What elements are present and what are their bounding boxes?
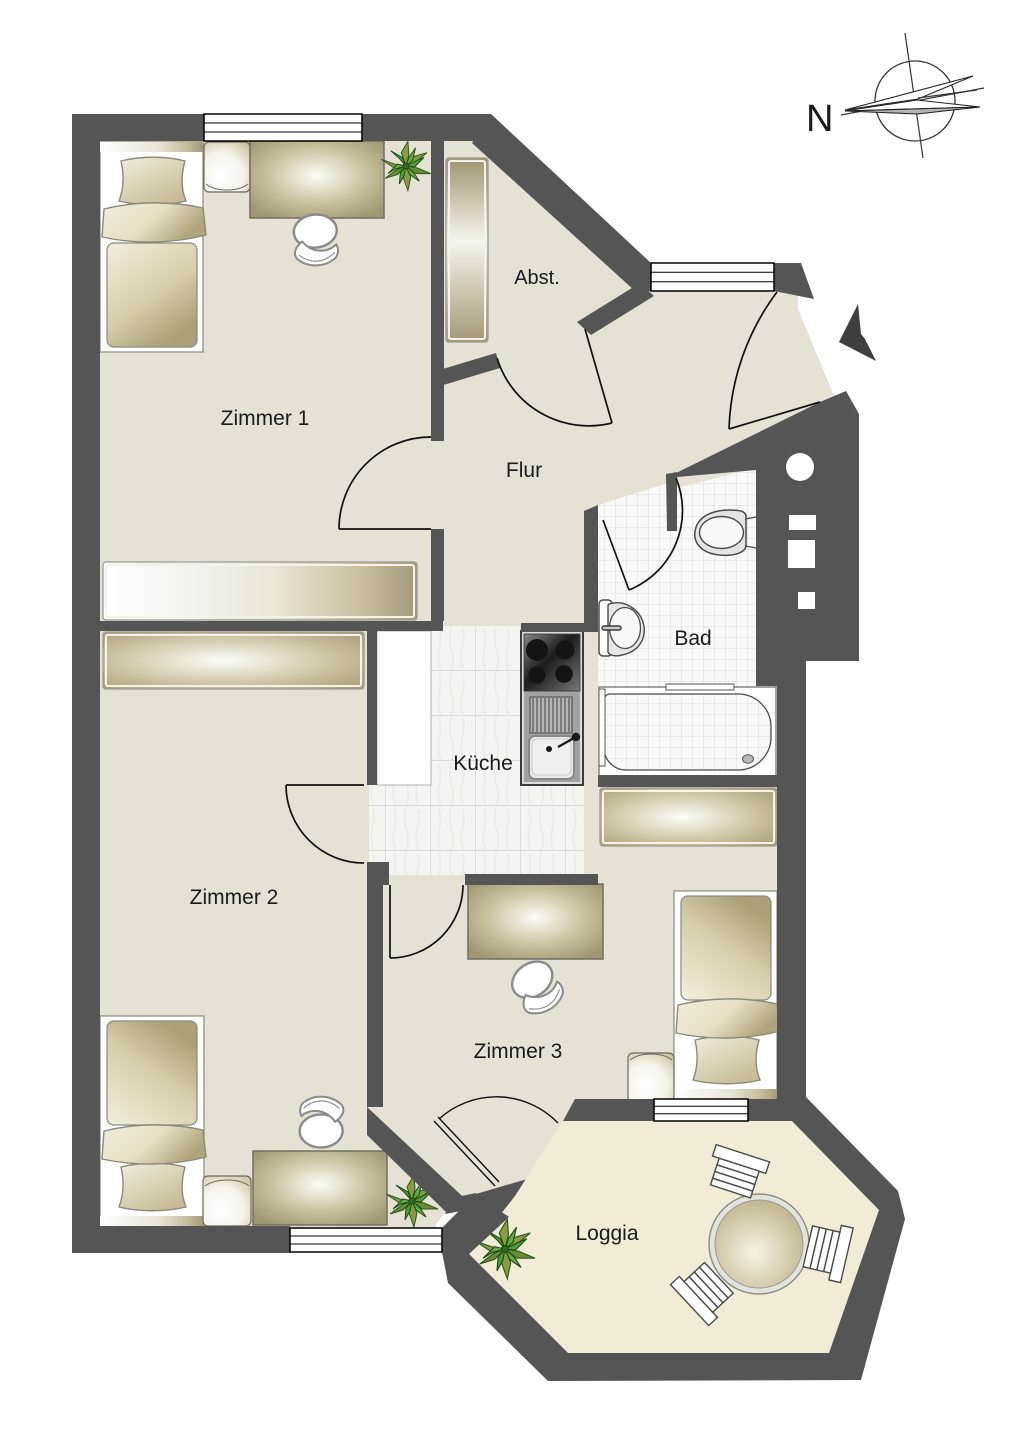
svg-text:Abst.: Abst. [514,267,560,289]
svg-text:Loggia: Loggia [575,1222,638,1245]
svg-text:Zimmer 1: Zimmer 1 [221,407,310,430]
svg-text:Flur: Flur [506,459,542,482]
svg-text:Zimmer 2: Zimmer 2 [190,886,279,909]
svg-text:Zimmer 3: Zimmer 3 [474,1040,563,1063]
svg-text:Bad: Bad [674,627,711,650]
svg-text:Küche: Küche [453,752,513,775]
svg-text:N: N [806,98,833,140]
